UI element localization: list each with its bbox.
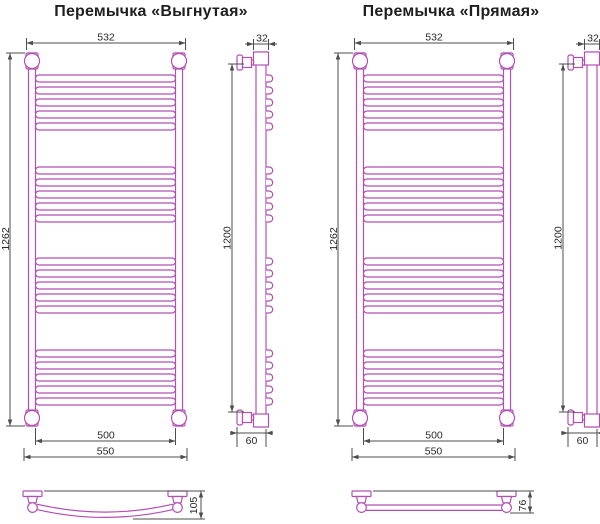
dim-rail-height: 1200 (222, 226, 234, 250)
drawing-title-curved: Перемычка «Выгнутая» (54, 3, 248, 21)
dim-overall-height: 1262 (328, 227, 340, 251)
dim-crossbar-depth: 105 (188, 497, 200, 515)
dim-side-depth: 32 (587, 33, 599, 45)
drawing-straight: 53212625005503212006076 (328, 32, 600, 514)
technical-drawing-canvas: 5321262500550321200601055321262500550321… (0, 0, 600, 524)
side-view-curved: 32120060 (222, 33, 278, 448)
front-view-curved: 5321262500550 (0, 32, 187, 462)
dim-rung-width: 500 (425, 430, 443, 442)
drawing-sheet: 5321262500550321200601055321262500550321… (0, 0, 600, 524)
dim-top-width: 532 (97, 32, 115, 44)
dim-top-width: 532 (425, 32, 443, 44)
front-view-straight: 5321262500550 (328, 32, 515, 462)
crossbar-profile-curved: 105 (23, 491, 205, 519)
dim-side-depth: 32 (256, 33, 268, 45)
dim-overall-width: 550 (425, 446, 443, 458)
dim-rung-width: 500 (97, 430, 115, 442)
dim-rail-height: 1200 (553, 226, 565, 250)
side-view-straight: 32120060 (553, 33, 600, 448)
dim-wall-offset: 60 (577, 435, 589, 447)
dim-crossbar-depth: 76 (517, 500, 529, 512)
dim-wall-offset: 60 (246, 435, 258, 447)
drawing-curved: 532126250055032120060105 (0, 32, 277, 520)
crossbar-profile-straight: 76 (352, 491, 534, 513)
drawing-title-straight: Перемычка «Прямая» (363, 3, 540, 21)
dim-overall-width: 550 (97, 446, 115, 458)
dim-overall-height: 1262 (0, 227, 12, 251)
